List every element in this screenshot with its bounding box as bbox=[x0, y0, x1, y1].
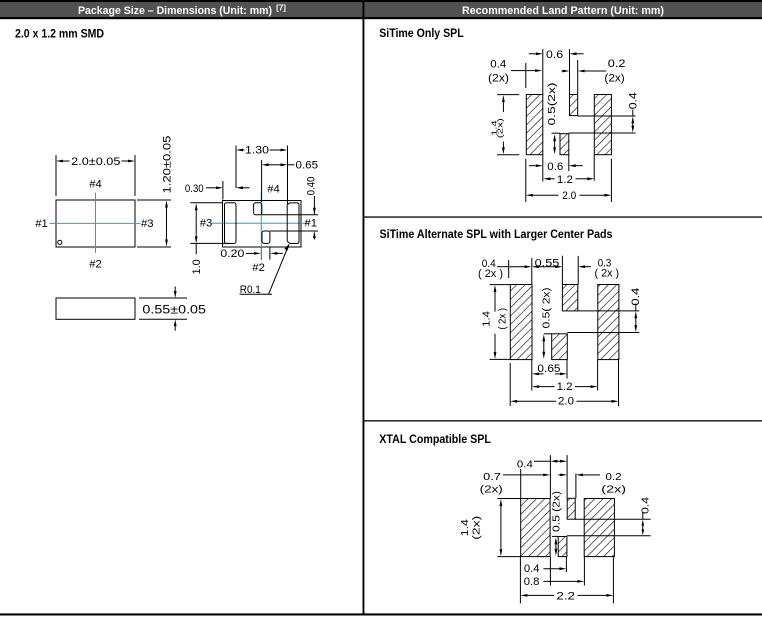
svg-text:XTAL Compatible SPL: XTAL Compatible SPL bbox=[379, 432, 491, 446]
svg-text:SiTime Alternate SPL with Larg: SiTime Alternate SPL with Larger Center … bbox=[380, 227, 613, 241]
svg-text:1.2: 1.2 bbox=[557, 174, 573, 186]
svg-text:0.5 (2x): 0.5 (2x) bbox=[551, 491, 563, 532]
svg-text:2.0±0.05: 2.0±0.05 bbox=[71, 156, 120, 168]
svg-text:1.2: 1.2 bbox=[557, 381, 573, 393]
svg-text:0.65: 0.65 bbox=[537, 363, 560, 375]
svg-text:2.0: 2.0 bbox=[558, 395, 574, 407]
svg-text:0.5( 2x): 0.5( 2x) bbox=[541, 288, 553, 329]
svg-text:Recommended Land Pattern (Unit: Recommended Land Pattern (Unit: mm) bbox=[462, 5, 664, 17]
svg-text:(2x): (2x) bbox=[601, 484, 626, 495]
svg-text:2.2: 2.2 bbox=[556, 590, 575, 602]
svg-text:R0.1: R0.1 bbox=[240, 284, 261, 296]
svg-text:2.0: 2.0 bbox=[562, 190, 576, 202]
svg-text:#1: #1 bbox=[305, 217, 318, 229]
svg-text:#4: #4 bbox=[89, 178, 102, 190]
svg-text:0.65: 0.65 bbox=[296, 159, 319, 171]
svg-text:1.4: 1.4 bbox=[482, 310, 493, 326]
svg-text:( 2x ): ( 2x ) bbox=[478, 268, 503, 280]
svg-text:0.20: 0.20 bbox=[220, 248, 244, 260]
svg-text:#3: #3 bbox=[141, 218, 154, 230]
svg-text:(2x): (2x) bbox=[604, 73, 624, 85]
svg-text:0.4: 0.4 bbox=[641, 497, 652, 514]
svg-text:(2x): (2x) bbox=[472, 516, 483, 540]
svg-text:0.8: 0.8 bbox=[524, 576, 540, 588]
svg-text:0.4: 0.4 bbox=[517, 459, 533, 470]
svg-text:( 2x ): ( 2x ) bbox=[497, 308, 508, 330]
svg-text:SiTime Only SPL: SiTime Only SPL bbox=[379, 26, 464, 40]
svg-text:0.30: 0.30 bbox=[185, 183, 204, 195]
svg-text:1.30: 1.30 bbox=[245, 145, 269, 157]
svg-text:#4: #4 bbox=[267, 183, 280, 195]
svg-text:0.6: 0.6 bbox=[547, 161, 563, 173]
svg-text:(2x): (2x) bbox=[480, 484, 503, 495]
svg-text:#2: #2 bbox=[252, 262, 265, 274]
svg-text:0.4: 0.4 bbox=[630, 288, 642, 306]
svg-text:0.55±0.05: 0.55±0.05 bbox=[142, 302, 206, 316]
svg-text:#2: #2 bbox=[89, 258, 102, 270]
svg-text:[7]: [7] bbox=[276, 4, 286, 13]
svg-text:0.6: 0.6 bbox=[546, 49, 563, 61]
svg-text:1.4: 1.4 bbox=[460, 519, 471, 537]
svg-text:Package Size – Dimensions (Uni: Package Size – Dimensions (Unit: mm) bbox=[78, 5, 272, 17]
svg-text:1.20±0.05: 1.20±0.05 bbox=[162, 136, 174, 194]
svg-text:1.0: 1.0 bbox=[191, 259, 203, 274]
svg-text:0.4: 0.4 bbox=[524, 563, 540, 575]
svg-text:0.2: 0.2 bbox=[606, 472, 622, 483]
svg-text:0.4: 0.4 bbox=[490, 58, 506, 70]
svg-text:(2x): (2x) bbox=[488, 72, 509, 84]
svg-text:0.5(2x): 0.5(2x) bbox=[547, 83, 558, 126]
svg-text:0.55: 0.55 bbox=[535, 258, 560, 270]
svg-text:0.40: 0.40 bbox=[306, 177, 318, 196]
svg-text:0.4: 0.4 bbox=[627, 92, 639, 109]
svg-text:#3: #3 bbox=[200, 218, 213, 230]
svg-text:2.0 x 1.2 mm SMD: 2.0 x 1.2 mm SMD bbox=[15, 27, 104, 41]
svg-text:( 2x ): ( 2x ) bbox=[595, 268, 620, 280]
svg-text:0.2: 0.2 bbox=[608, 58, 626, 70]
svg-text:#1: #1 bbox=[35, 218, 48, 230]
svg-text:0.7: 0.7 bbox=[483, 472, 501, 483]
svg-text:(2x): (2x) bbox=[498, 118, 505, 138]
